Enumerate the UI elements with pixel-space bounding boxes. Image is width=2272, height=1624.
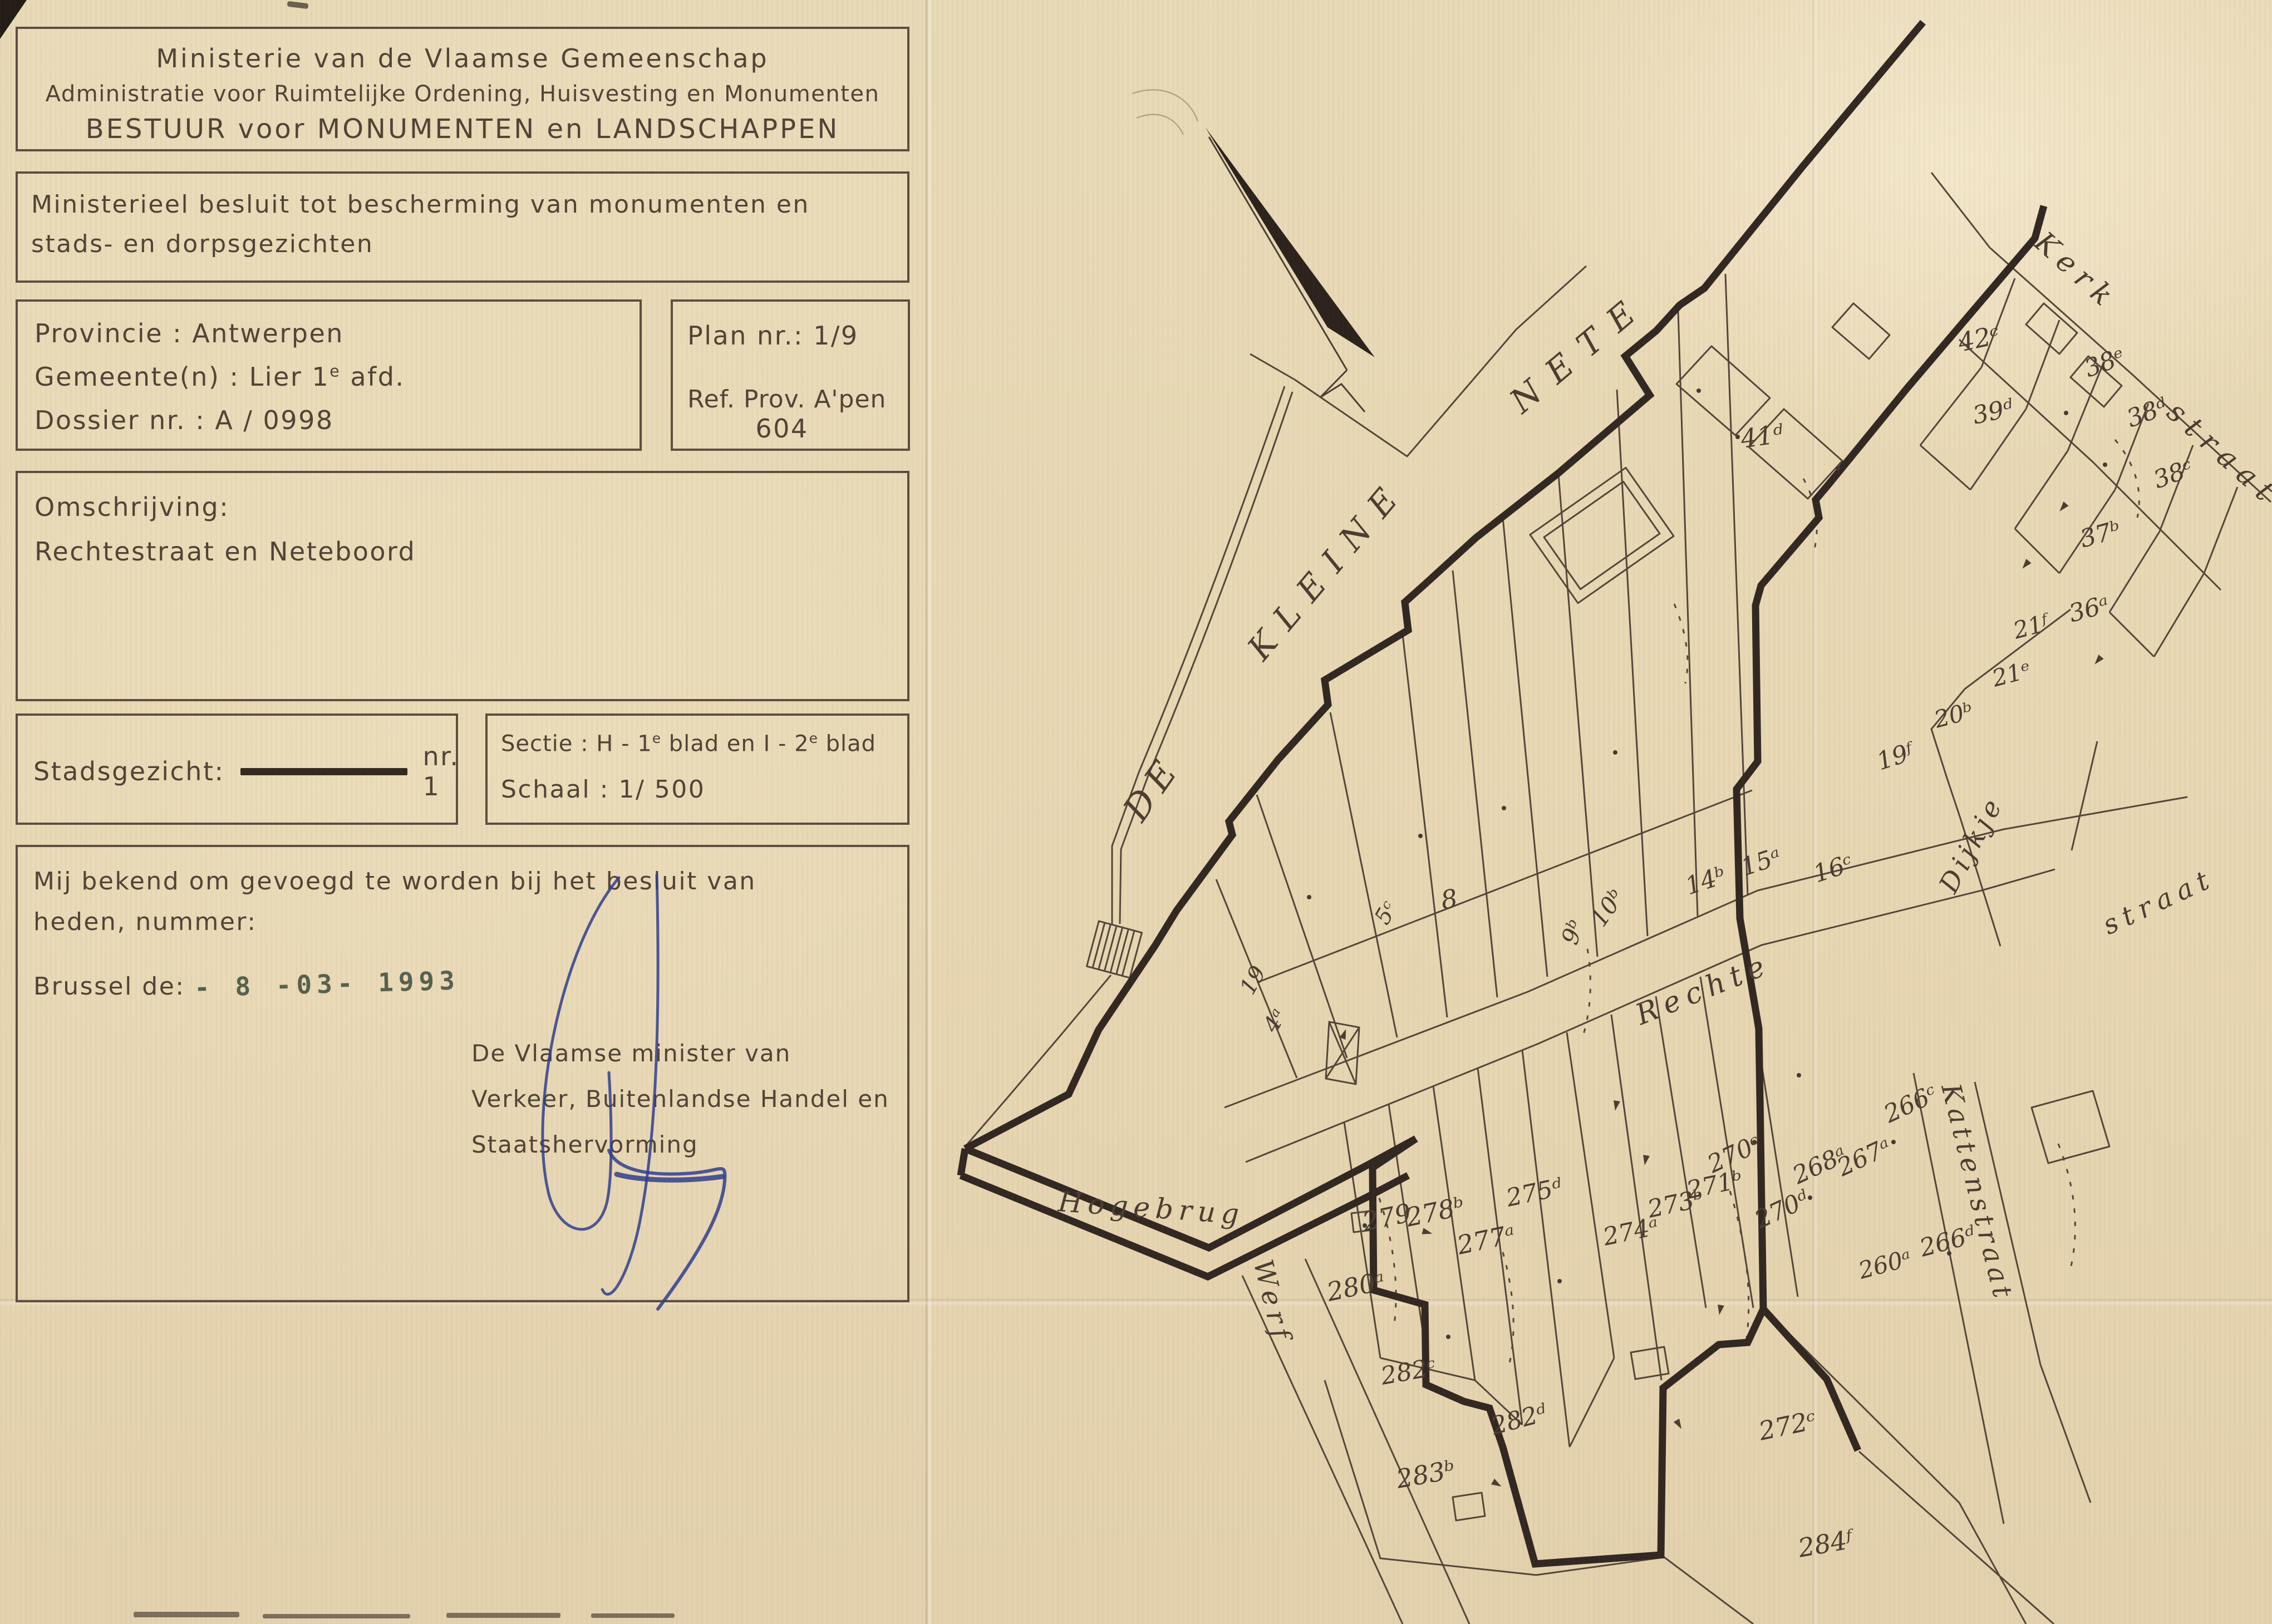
parcel-label: 16ᶜ	[1810, 849, 1857, 889]
bottom-edge-mark	[446, 1613, 560, 1618]
parcel-label: 9ᵇ	[1556, 916, 1590, 948]
parcel-label: 283ᵇ	[1394, 1454, 1458, 1494]
bottom-edge-mark	[263, 1614, 410, 1618]
parcel-label: 284ᶠ	[1796, 1524, 1858, 1563]
bottom-edge-mark	[591, 1613, 675, 1618]
municipality-prefix: Gemeente(n) : Lier 1	[35, 362, 330, 392]
parcel-label: 277ᵃ	[1454, 1219, 1518, 1261]
omschrijving-box: Omschrijving: Rechtestraat en Neteboord	[16, 471, 909, 701]
sectie-mid: blad en I - 2	[661, 731, 809, 756]
date-stamp: - 8 -03- 1993	[194, 965, 460, 1002]
sectie-sup1: e	[652, 730, 661, 746]
street-label-kerk: Kerk	[2028, 225, 2125, 317]
decree-box: Ministerieel besluit tot bescherming van…	[16, 171, 909, 283]
sectie-prefix: Sectie : H - 1	[501, 731, 652, 756]
parcel-label: 280ᵃ	[1324, 1266, 1388, 1307]
parcel-label: 282ᵈ	[1488, 1399, 1551, 1441]
ref-prov-line: Ref. Prov. A'pen	[687, 385, 908, 414]
parcel-label: 266ᵈ	[1916, 1221, 1979, 1263]
scanned-decree-page: Ministerie van de Vlaamse Gemeenschap Ad…	[0, 0, 2272, 1624]
signature-ink	[508, 869, 853, 1359]
plan-number: Plan nr.: 1/9	[687, 321, 908, 351]
parcel-label: 37ᵇ	[2077, 515, 2124, 553]
parcel-label: 41ᵈ	[1738, 419, 1786, 454]
parcel-label: 15ᵃ	[1738, 843, 1785, 882]
ref-prov-number: 604	[687, 414, 877, 444]
parcel-label: 38ᵉ	[2081, 342, 2128, 383]
decree-line2: stads- en dorpsgezichten	[31, 230, 894, 258]
street-label-kerk-straat: straat	[2160, 395, 2272, 514]
schaal-line: Schaal : 1/ 500	[501, 775, 907, 804]
decree-line1: Ministerieel besluit tot bescherming van…	[31, 190, 894, 219]
parcel-label: 278ᵇ	[1403, 1191, 1467, 1233]
parcel-label: 4ᵃ	[1258, 1005, 1292, 1037]
parcel-label: 272ᶜ	[1755, 1405, 1819, 1446]
stadsgezicht-number: nr. 1	[423, 741, 460, 801]
parcel-label: 36ᵃ	[2066, 590, 2112, 628]
ministry-title: Ministerie van de Vlaamse Gemeenschap	[18, 43, 907, 73]
parcel-label: 275ᵈ	[1503, 1173, 1565, 1213]
municipality-line: Gemeente(n) : Lier 1e afd.	[35, 362, 640, 392]
parcel-label: 5ᶜ	[1370, 897, 1403, 929]
administration-subtitle: Administratie voor Ruimtelijke Ordening,…	[18, 81, 907, 107]
street-label-kattenstraat: Kattenstraat	[1935, 1080, 2019, 1305]
stadsgezicht-box: Stadsgezicht: nr. 1	[16, 713, 458, 825]
province-box: Provincie : Antwerpen Gemeente(n) : Lier…	[16, 299, 642, 451]
municipality-suffix: afd.	[341, 362, 405, 392]
dossier-line: Dossier nr. : A / 0998	[35, 405, 640, 435]
parcel-label: 38ᶜ	[2150, 454, 2197, 494]
province-line: Provincie : Antwerpen	[35, 318, 640, 348]
sectie-suffix: blad	[818, 731, 876, 756]
bureau-title: BESTUUR voor MONUMENTEN en LANDSCHAPPEN	[18, 114, 907, 145]
stadsgezicht-boundary	[961, 22, 2044, 1564]
parcel-label: 21ᶠ	[2010, 608, 2054, 644]
top-edge-nick	[287, 1, 309, 9]
stadsgezicht-label: Stadsgezicht:	[33, 756, 225, 786]
municipality-sup: e	[330, 362, 341, 381]
header-box: Ministerie van de Vlaamse Gemeenschap Ad…	[16, 27, 909, 151]
parcel-label: 21ᵉ	[1989, 656, 2034, 692]
river-label-de: DE	[1115, 747, 1189, 829]
pencil-marks	[1133, 90, 1198, 135]
bekend-box: Mij bekend om gevoegd te worden bij het …	[16, 845, 909, 1302]
parcel-label: 266ᶜ	[1879, 1080, 1942, 1129]
sectie-sup2: e	[809, 730, 818, 746]
plan-box: Plan nr.: 1/9 Ref. Prov. A'pen 604	[671, 299, 910, 451]
street-label-straat: straat	[2098, 862, 2220, 941]
parcel-label: 267ᵃ	[1832, 1133, 1896, 1182]
parcel-label: 14ᵇ	[1682, 861, 1730, 900]
bottom-edge-mark	[134, 1612, 239, 1617]
parcel-label: 19ᶠ	[1873, 737, 1920, 776]
sectie-box: Sectie : H - 1e blad en I - 2e blad Scha…	[485, 713, 909, 825]
parcel-label: 39ᵈ	[1970, 393, 2017, 430]
omschrijving-label: Omschrijving:	[35, 492, 907, 522]
boundary-line-sample	[240, 768, 407, 775]
north-arrow-icon	[1205, 127, 1375, 412]
parcel-label: 260ᵃ	[1855, 1244, 1914, 1284]
parcel-label: 19	[1235, 962, 1271, 999]
cadastral-map: DE KLEINE NETE Kerk straat Dijkje straat…	[924, 0, 2272, 1624]
omschrijving-value: Rechtestraat en Neteboord	[35, 537, 907, 567]
brussel-label: Brussel de:	[33, 972, 185, 1001]
parcel-label: 38ᵈ	[2123, 392, 2171, 433]
parcel-label: 20ᵇ	[1931, 697, 1976, 734]
sectie-line: Sectie : H - 1e blad en I - 2e blad	[501, 730, 907, 756]
